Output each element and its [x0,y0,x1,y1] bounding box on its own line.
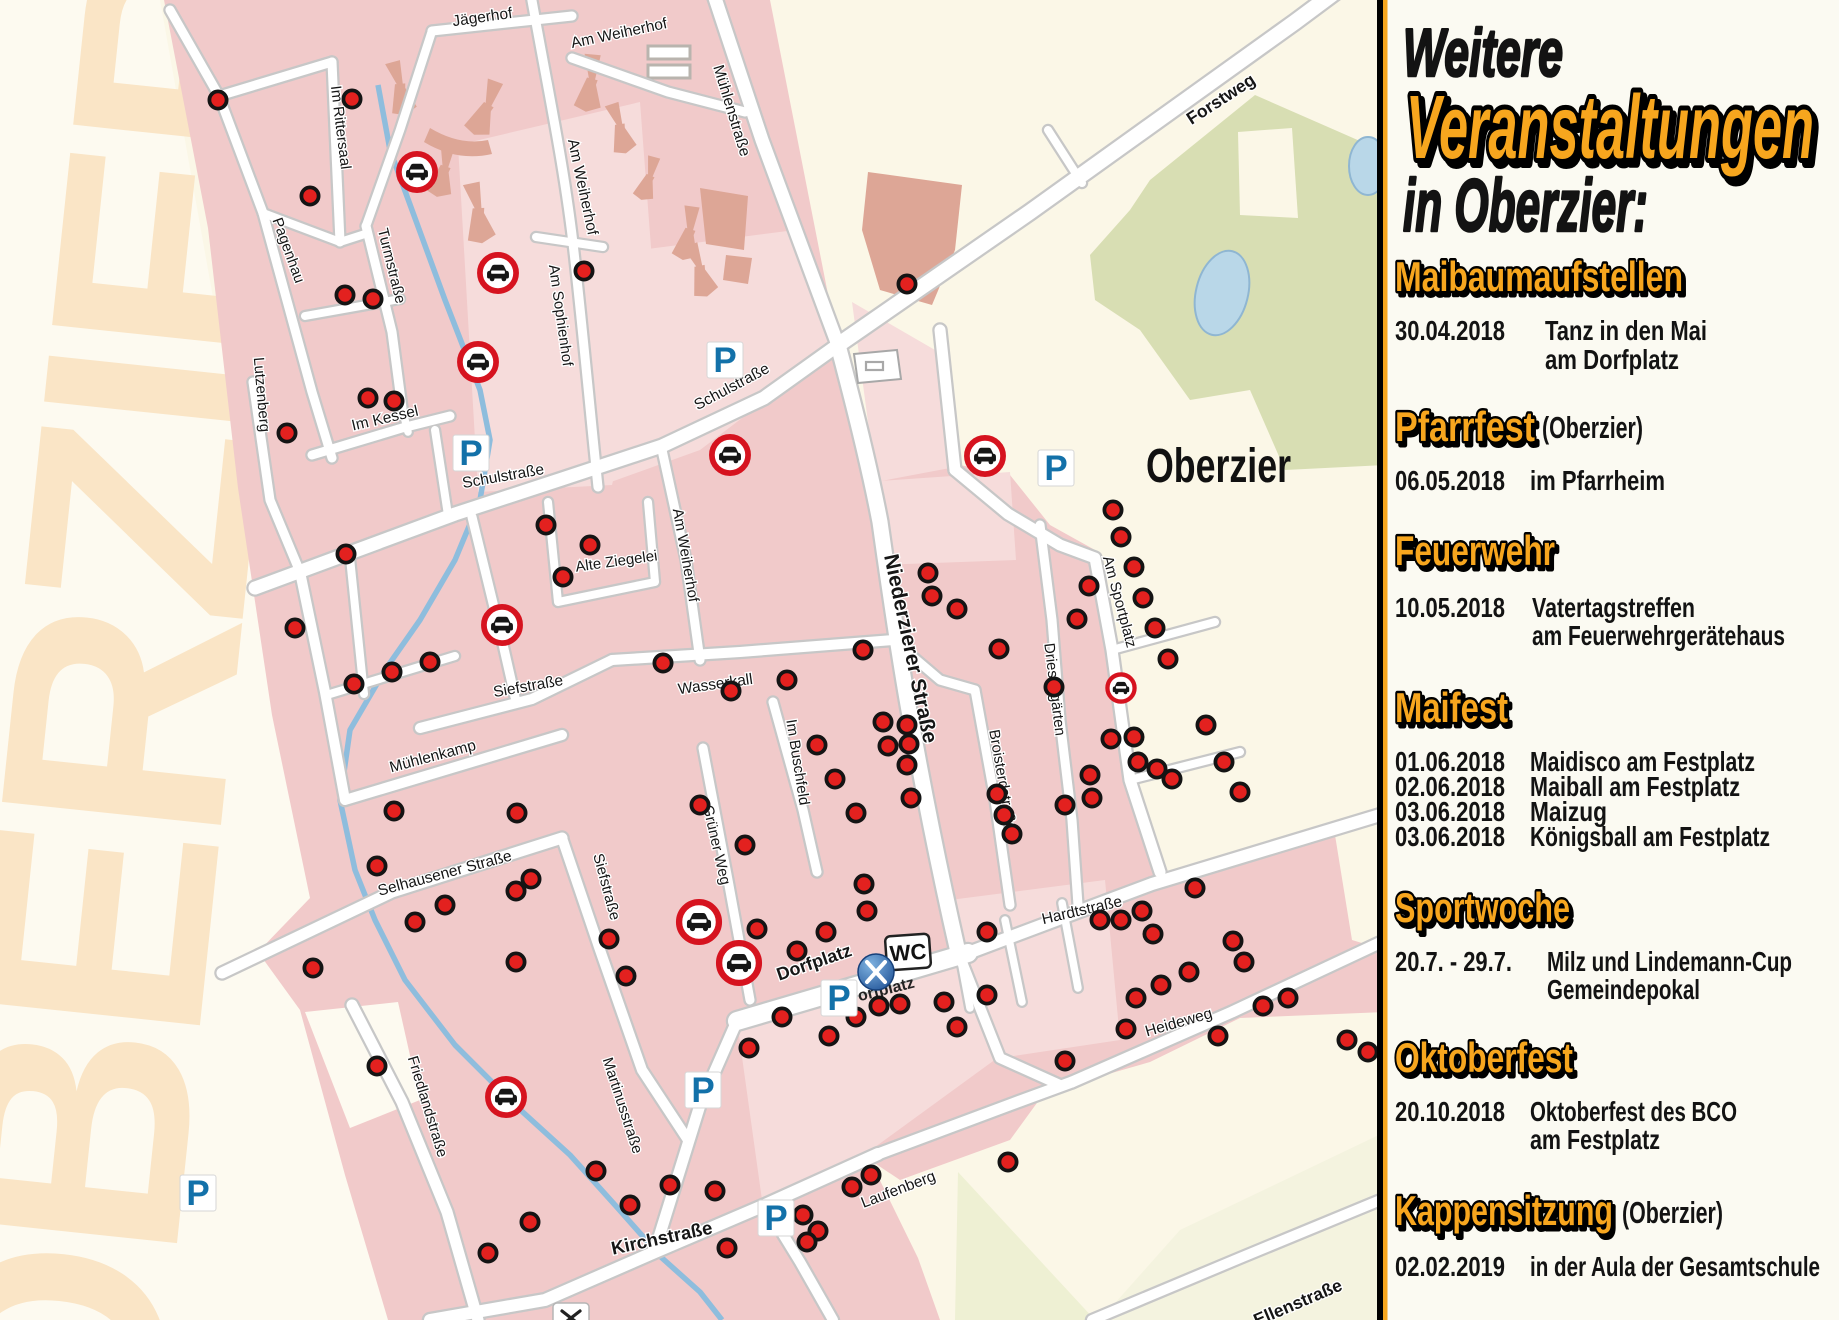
svg-text:P: P [186,1174,209,1213]
svg-text:P: P [691,1071,714,1110]
svg-text:P: P [827,979,850,1018]
svg-text:06.05.2018: 06.05.2018 [1395,465,1505,496]
svg-text:P: P [713,341,736,380]
svg-text:P: P [764,1199,787,1238]
svg-text:am Festplatz: am Festplatz [1530,1124,1660,1155]
svg-text:Veranstaltungen: Veranstaltungen [1406,78,1814,178]
svg-text:20.7. - 29.7.: 20.7. - 29.7. [1395,946,1512,977]
svg-text:Feuerwehr: Feuerwehr [1395,527,1555,574]
svg-text:WC: WC [889,939,927,967]
svg-text:Maifest: Maifest [1395,684,1508,731]
svg-text:am Dorfplatz: am Dorfplatz [1545,344,1679,375]
svg-text:30.04.2018: 30.04.2018 [1395,315,1505,346]
svg-text:Oktoberfest des BCO: Oktoberfest des BCO [1530,1096,1737,1127]
svg-text:Pfarrfest: Pfarrfest [1395,403,1535,450]
svg-text:Kappensitzung: Kappensitzung [1395,1187,1613,1234]
svg-text:02.02.2019: 02.02.2019 [1395,1251,1505,1282]
svg-text:20.10.2018: 20.10.2018 [1395,1096,1505,1127]
svg-text:im Pfarrheim: im Pfarrheim [1530,465,1665,496]
svg-text:P: P [459,434,482,473]
svg-text:Oberzier: Oberzier [1146,440,1291,493]
svg-text:Tanz in den Mai: Tanz in den Mai [1545,315,1707,346]
svg-text:Oktoberfest: Oktoberfest [1395,1034,1573,1081]
svg-text:03.06.2018: 03.06.2018 [1395,821,1505,852]
svg-text:Königsball am Festplatz: Königsball am Festplatz [1530,821,1770,852]
svg-text:am Feuerwehrgerätehaus: am Feuerwehrgerätehaus [1532,620,1785,651]
svg-text:in der Aula der Gesamtschule: in der Aula der Gesamtschule [1530,1251,1820,1282]
svg-text:Sportwoche: Sportwoche [1395,884,1570,931]
svg-text:Milz und Lindemann-Cup: Milz und Lindemann-Cup [1547,946,1792,977]
svg-text:10.05.2018: 10.05.2018 [1395,592,1505,623]
svg-text:P: P [1044,449,1067,488]
svg-text:Vatertagstreffen: Vatertagstreffen [1532,592,1695,623]
svg-text:(Oberzier): (Oberzier) [1542,410,1643,445]
svg-text:Gemeindepokal: Gemeindepokal [1547,974,1700,1005]
svg-text:(Oberzier): (Oberzier) [1622,1195,1723,1230]
svg-text:Maibaumaufstellen: Maibaumaufstellen [1395,253,1683,300]
svg-text:in Oberzier:: in Oberzier: [1403,164,1648,247]
